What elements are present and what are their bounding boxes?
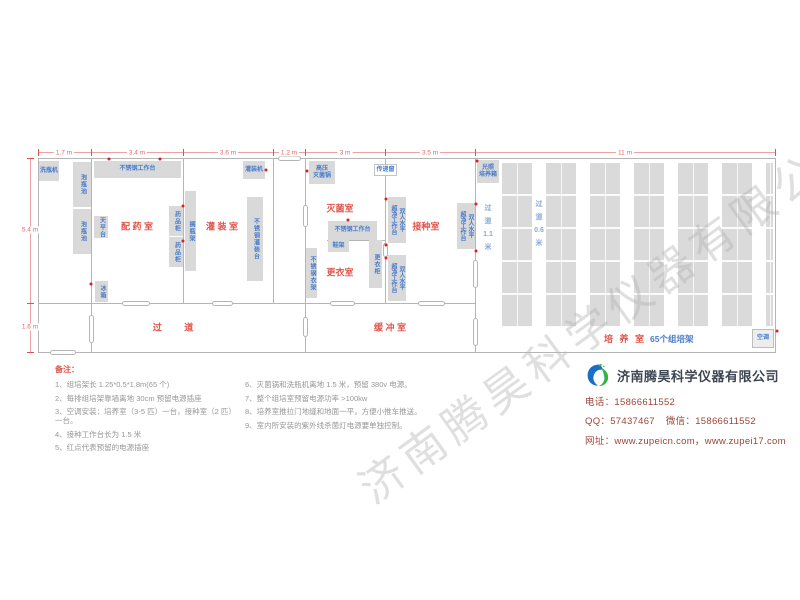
company-phone-line: 电话：15866611552 [585,394,800,408]
room-label-filling-room: 灌 装 室 [206,220,238,233]
door-opening [89,315,94,343]
dimension-tick [273,149,274,156]
soak-pool-2: 泡瓶池 [73,209,91,254]
aisle-1-1m-label: 过道1.1米 [483,202,493,254]
power-socket-dot [108,158,111,161]
notes-column-2: 6、灭菌锅和洗瓶机离地 1.5 米，预留 380v 电源。7、整个组培室预留电源… [245,380,445,457]
wall [385,158,386,303]
wall [775,158,776,353]
door-opening [330,301,355,306]
culture-rack-row [722,163,752,327]
power-socket-dot [385,198,388,201]
note-item: 8、培养室推拉门地缝和地面一平，方便小推车推送。 [245,407,445,416]
floor-plan-canvas: 济南腾昊科学仪器有限公司 培 养 室65个组培架 备注： 1、组培架长 1.25… [0,0,800,600]
bottle-washer: 洗瓶机 [39,161,59,181]
wechat-value: 15866611552 [695,416,756,427]
light-incubator: 光照 培养箱 [477,160,499,183]
company-web-line: 网址：www.zupeicn.com，www.zupei17.com [585,433,800,447]
note-item: 6、灭菌锅和洗瓶机离地 1.5 米，预留 380v 电源。 [245,380,445,389]
note-item: 5、红点代表预留的电源插座 [55,443,241,452]
shoe-rack: 鞋架 [328,240,349,252]
company-qq-line: QQ：57437467 微信：15866611552 [585,413,800,427]
power-socket-dot [347,219,350,222]
dimension-label: 1.6 m [20,324,40,331]
ss-clothes-rack: 不锈钢衣架 [306,248,317,298]
room-label-dressing-room: 更衣室 [326,266,353,279]
power-socket-dot [90,283,93,286]
company-name: 济南腾昊科学仪器有限公司 [617,366,779,385]
wall [38,352,776,353]
door-opening [473,260,478,288]
company-logo-icon [585,362,611,388]
room-label-culture-room: 培 养 室65个组培架 [604,332,693,345]
culture-rack-row [678,163,708,327]
note-item: 9、室内所安装的紫外线杀菌灯电源要单独控制。 [245,421,445,430]
door-opening [418,301,445,306]
qq-label: QQ： [585,416,610,427]
web-label: 网址： [585,436,614,447]
door-opening [212,301,233,306]
power-socket-dot [475,203,478,206]
culture-rack-row [634,163,664,327]
clean-bench-3: 双人水平 超净工作台 [457,203,475,249]
door-opening [278,156,301,161]
bottle-shelf-rack: 搁瓶架 [185,191,196,271]
wall [91,158,92,303]
dimension-label: 3.5 m [420,150,440,157]
wechat-label: 微信： [666,416,695,427]
culture-room-rack-count: 65个组培架 [650,334,693,344]
dimension-tick [305,149,306,156]
door-opening [303,317,308,337]
autoclave: 高压 灭菌锅 [309,161,335,184]
wall [183,158,184,303]
door-opening [122,301,150,306]
culture-rack-row [502,163,532,327]
power-socket-dot [776,330,779,333]
dimension-tick [183,149,184,156]
notes-column-1: 1、组培架长 1.25*0.5*1.8m(65 个)2、每排组培架靠墙离地 30… [55,380,241,457]
note-item: 2、每排组培架靠墙离地 30cm 预留电源插座 [55,394,241,403]
fridge: 冰箱 [95,281,108,302]
note-item: 3、空调安装：培养室（3-5 匹）一台，接种室（2 匹）一台。 [55,407,241,425]
door-opening [473,318,478,346]
wall [38,158,775,159]
room-label-prep-room: 配 药 室 [121,220,153,233]
qq-value: 57437467 [610,416,655,427]
dimension-tick [91,149,92,156]
notes-title: 备注： [55,364,445,375]
web-value: www.zupeicn.com，www.zupei17.com [614,436,785,447]
dimension-tick [385,149,386,156]
notes-section: 备注： 1、组培架长 1.25*0.5*1.8m(65 个)2、每排组培架靠墙离… [55,364,445,457]
power-socket-dot [182,240,185,243]
room-label-sterilization-room: 灭菌室 [326,202,353,215]
dimension-label: 3 m [338,150,353,157]
ss-filling-table: 不锈钢灌装台 [247,197,263,281]
phone-value: 15866611552 [614,397,675,408]
dimension-label: 1.7 m [54,150,74,157]
culture-rack-row [546,163,576,327]
air-conditioner: 空调 [752,329,774,348]
dimension-label: 3.4 m [127,150,147,157]
power-socket-dot [159,158,162,161]
pass-through-window: 传递窗 [374,164,397,176]
ss-workbench-steril: 不锈钢工作台 [328,221,377,240]
dimension-tick [475,149,476,156]
phone-label: 电话： [585,397,614,408]
note-item: 7、整个组培室预留电源功率 >100kw [245,394,445,403]
locker: 更衣柜 [369,240,382,288]
ss-workbench-prep: 不锈钢工作台 [94,161,181,178]
culture-rack-row [766,163,773,327]
dimension-tick [775,149,776,156]
dimension-tick [27,158,34,159]
dimension-tick [27,303,34,304]
power-socket-dot [385,244,388,247]
dimension-label: 3.6 m [218,150,238,157]
filling-machine: 灌装机 [243,161,265,179]
balance-table: 天平台 [94,216,108,238]
dimension-label: 11 m [616,150,634,157]
room-label-buffer-room: 缓 冲 室 [374,321,406,334]
dimension-tick [38,149,39,156]
power-socket-dot [475,250,478,253]
company-info: 济南腾昊科学仪器有限公司 电话：15866611552 QQ：57437467 … [585,362,800,447]
dimension-tick [27,352,34,353]
culture-rack-row [590,163,620,327]
door-opening [303,205,308,227]
clean-bench-1: 双人水平 超净工作台 [388,197,406,243]
power-socket-dot [265,169,268,172]
power-socket-dot [306,170,309,173]
note-item: 1、组培架长 1.25*0.5*1.8m(65 个) [55,380,241,389]
culture-room-name: 培 养 室 [604,334,646,344]
power-socket-dot [182,205,185,208]
soak-pool-1: 泡瓶池 [73,162,91,207]
room-label-corridor: 过 道 [153,321,204,334]
clean-bench-2: 双人水平 超净工作台 [388,255,406,301]
dimension-label: 5.4 m [20,227,40,234]
note-item: 4、接种工作台长为 1.5 米 [55,430,241,439]
power-socket-dot [385,257,388,260]
wall [273,158,274,303]
power-socket-dot [476,160,479,163]
dimension-label: 1.2 m [279,150,299,157]
medicine-cabinet-1: 药品柜 [169,206,183,236]
wall [38,303,476,304]
room-label-inoculation-room: 接种室 [412,220,439,233]
door-opening [50,350,76,355]
dimension-line-top [38,152,775,153]
aisle-0-6m-label: 过道0.6米 [534,198,544,250]
